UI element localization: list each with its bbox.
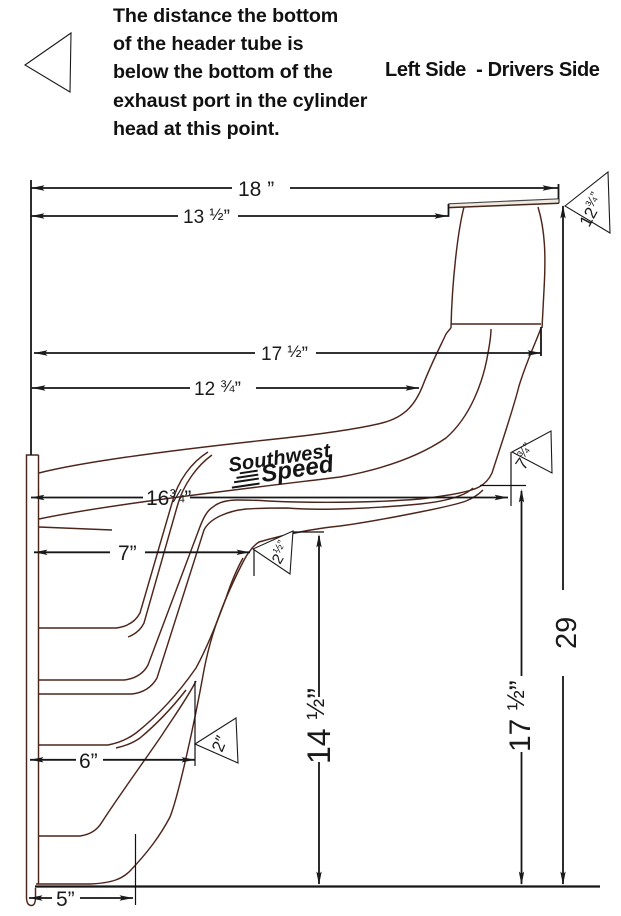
svg-text:17 ½”: 17 ½”: [503, 680, 537, 752]
svg-text:13 ½”: 13 ½”: [183, 205, 230, 228]
svg-text:29: 29: [551, 617, 583, 649]
svg-text:16¾”: 16¾”: [146, 486, 191, 510]
svg-text:12 ¾”: 12 ¾”: [194, 377, 241, 400]
svg-text:6”: 6”: [79, 750, 98, 773]
svg-text:7”: 7”: [118, 542, 137, 565]
svg-text:14 ½”: 14 ½”: [301, 688, 337, 764]
svg-text:5”: 5”: [56, 888, 75, 911]
svg-text:18 ”: 18 ”: [238, 178, 274, 201]
svg-text:17 ½”: 17 ½”: [261, 342, 308, 365]
